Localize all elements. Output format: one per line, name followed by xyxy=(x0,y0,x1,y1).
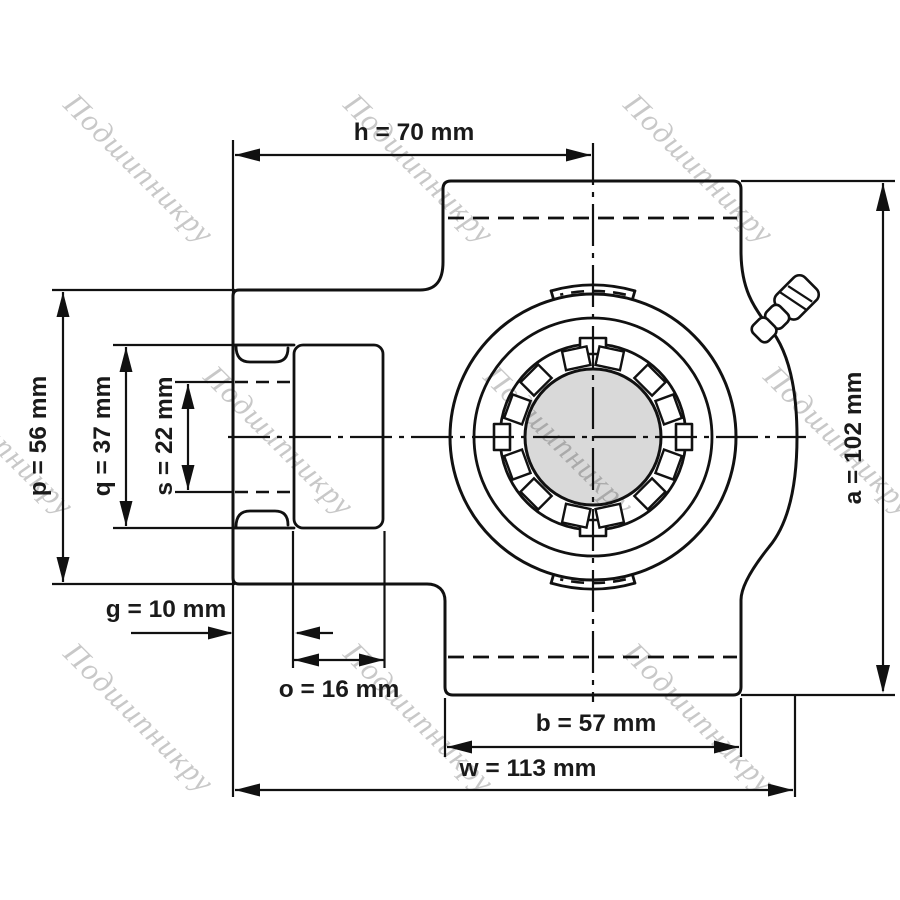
dimension-label-a: a = 102 mm xyxy=(840,372,867,505)
dimension-label-o: o = 16 mm xyxy=(279,676,400,703)
dimension-label-h: h = 70 mm xyxy=(354,119,475,146)
arrowhead xyxy=(876,183,890,211)
drawing-page: Подшипникру Подшипникру Подшипникру Подш… xyxy=(0,0,900,900)
slot-end-cap xyxy=(551,291,554,300)
dimension-label-s: s = 22 mm xyxy=(151,376,178,495)
slot-end-cap xyxy=(632,291,635,300)
dimension-label-w: w = 113 mm xyxy=(459,755,597,782)
watermark-text: Подшипникру xyxy=(756,357,900,523)
dimension-p: p = 56 mm xyxy=(25,290,235,584)
watermark-text: Подшипникру xyxy=(56,85,222,251)
dimension-label-q: q = 37 mm xyxy=(89,376,116,497)
thread-relief-bottom xyxy=(236,511,288,527)
technical-drawing-canvas: Подшипникру Подшипникру Подшипникру Подш… xyxy=(0,0,900,900)
arrowhead xyxy=(120,347,133,372)
arrowhead xyxy=(768,784,793,797)
watermark-text: Подшипникру xyxy=(616,85,782,251)
arrowhead xyxy=(235,784,260,797)
dimension-label-b: b = 57 mm xyxy=(536,710,657,737)
dimension-o: o = 16 mm xyxy=(279,531,400,703)
collar-tooth xyxy=(596,346,624,370)
arrowhead xyxy=(182,465,195,490)
arrowhead xyxy=(57,292,70,317)
watermark-text: Подшипникру xyxy=(56,634,222,800)
thread-relief-top xyxy=(236,346,288,362)
arrowhead xyxy=(566,149,591,162)
slot-end-cap xyxy=(632,575,635,584)
arrowhead xyxy=(235,149,260,162)
arrowhead xyxy=(208,627,233,640)
arrowhead xyxy=(295,627,320,640)
arrowhead xyxy=(876,665,890,693)
arrowhead xyxy=(57,557,70,582)
dimension-label-g: g = 10 mm xyxy=(106,596,227,623)
arrowhead xyxy=(182,384,195,409)
arrowhead xyxy=(294,654,319,667)
slot-end-cap xyxy=(551,575,554,584)
collar-tooth xyxy=(562,504,590,528)
collar-tooth xyxy=(562,346,590,370)
arrowhead xyxy=(120,501,133,526)
dimension-label-p: p = 56 mm xyxy=(25,376,52,497)
watermark-text: Подшипникру xyxy=(336,85,502,251)
dimension-g: g = 10 mm xyxy=(106,531,333,668)
collar-tooth xyxy=(596,504,624,528)
